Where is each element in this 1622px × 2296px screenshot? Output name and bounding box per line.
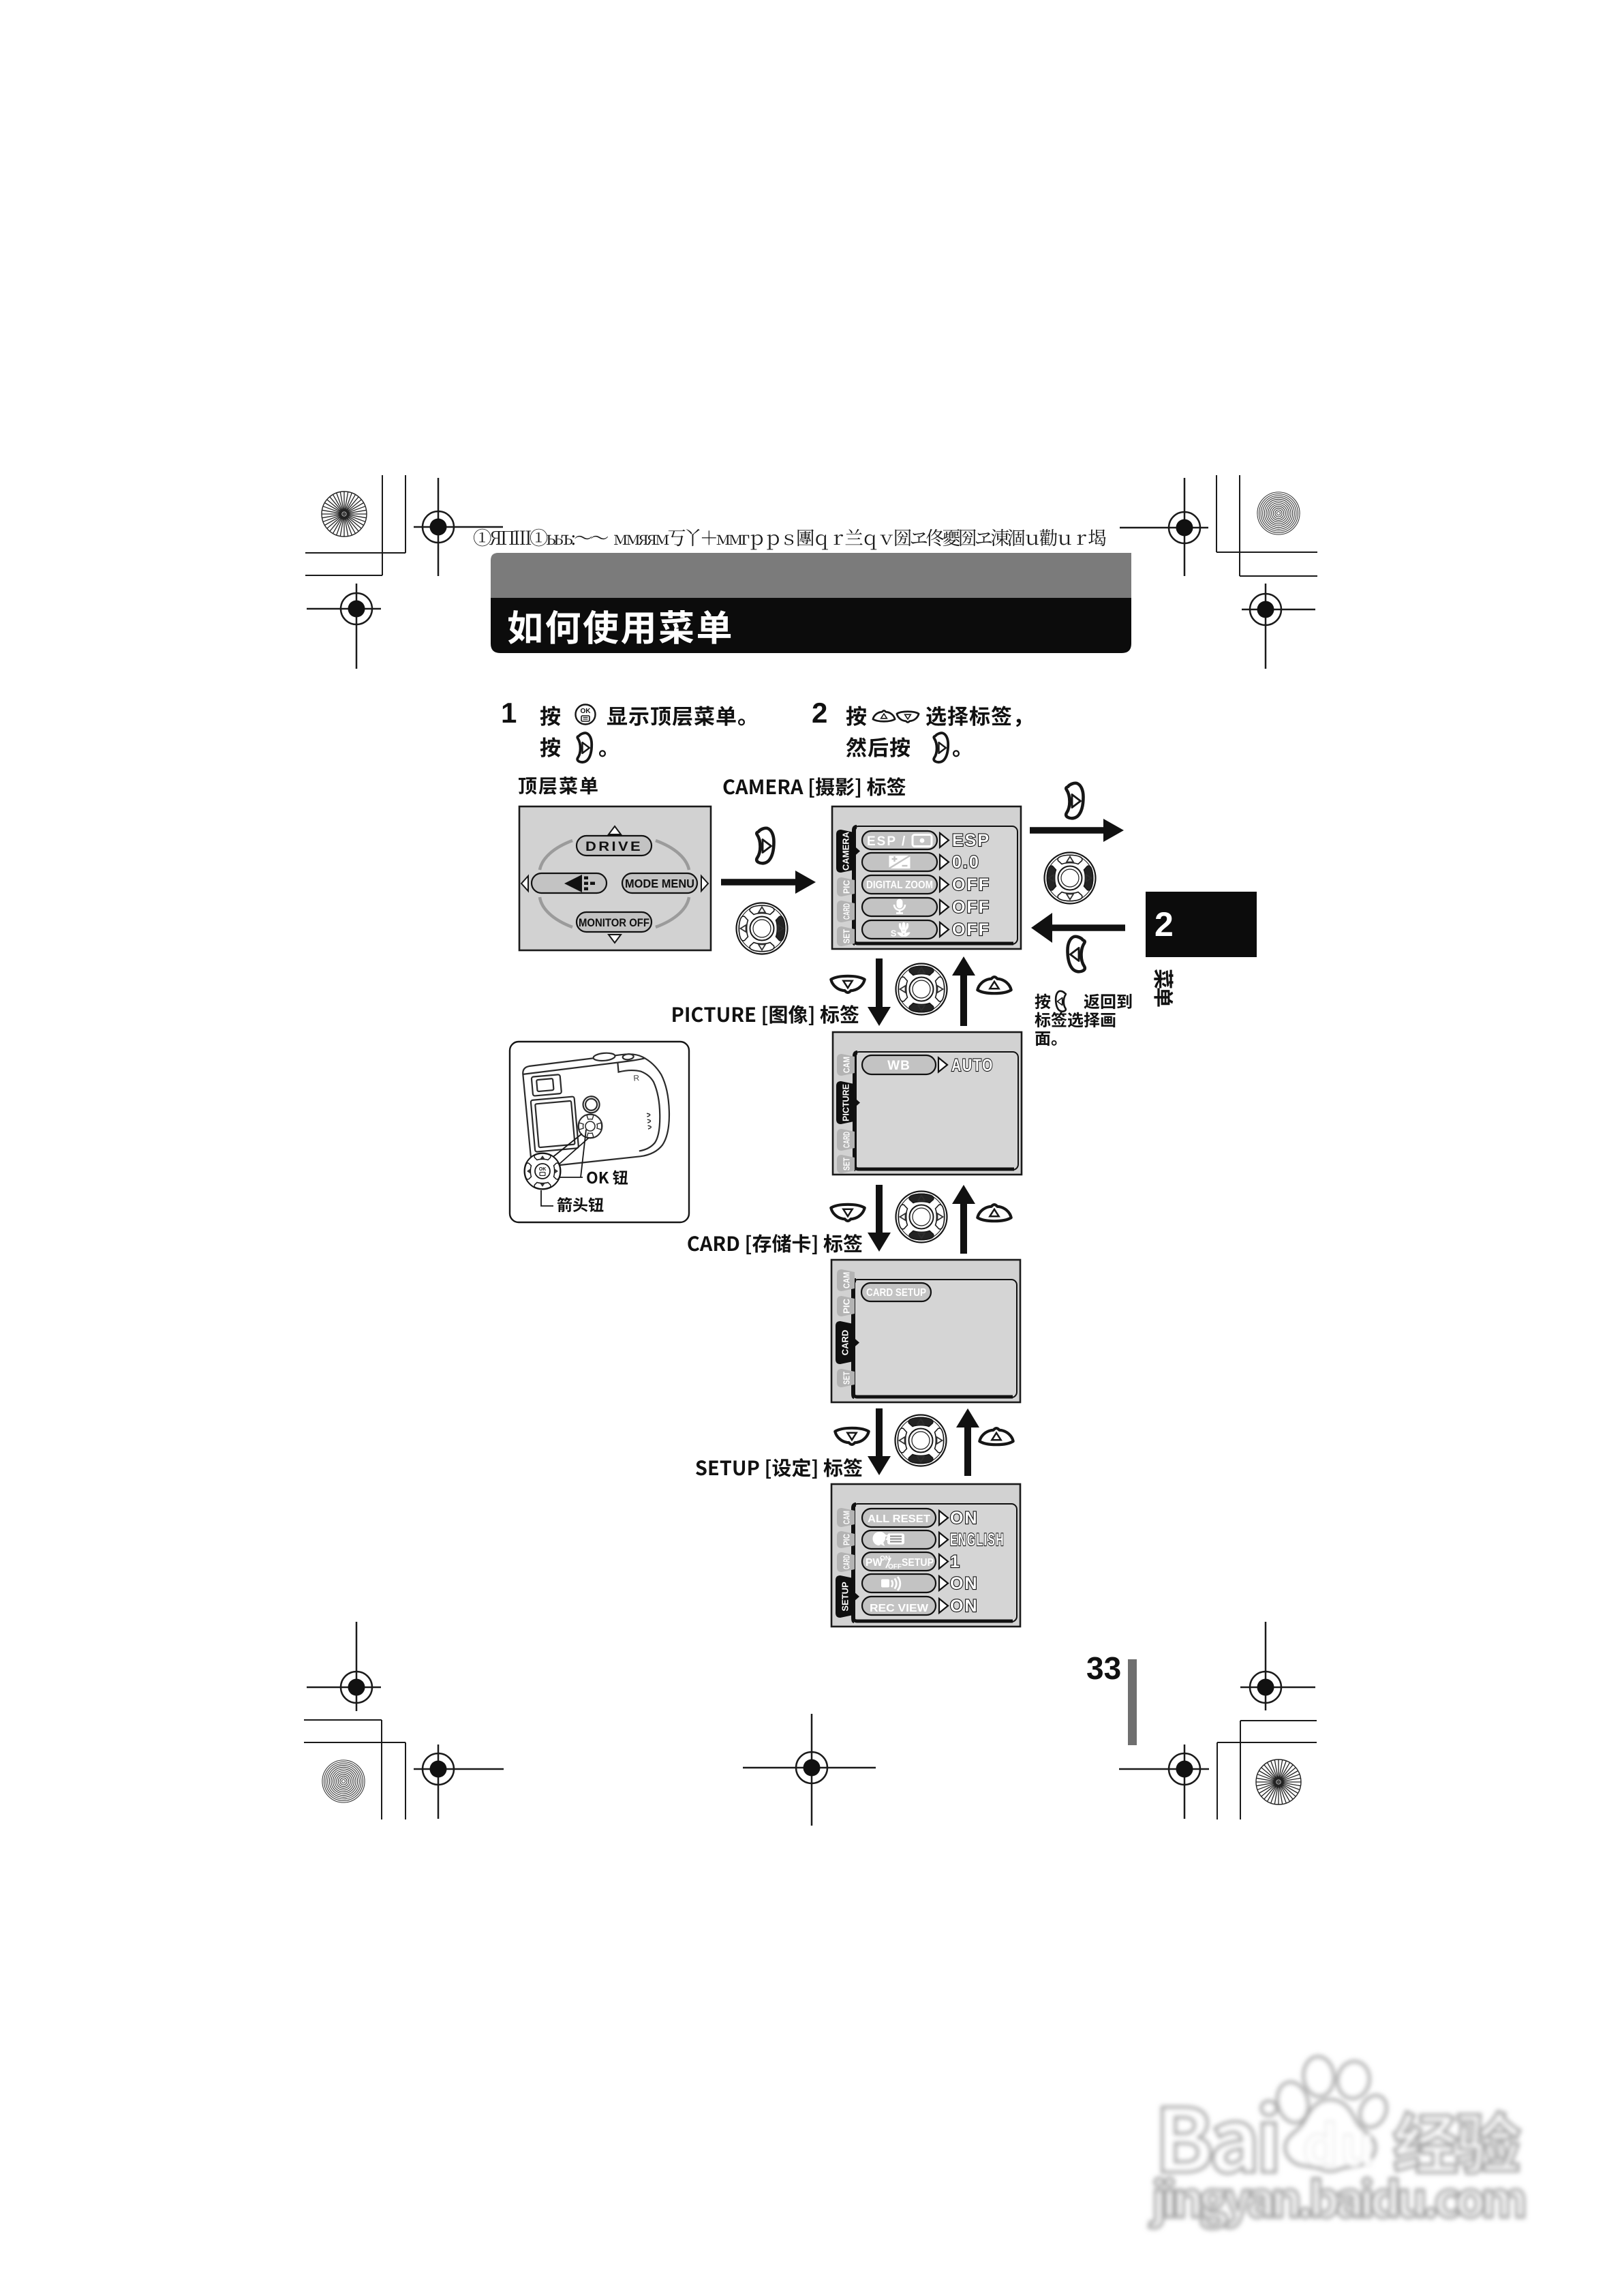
- svg-text:ESP /: ESP /: [867, 834, 906, 849]
- svg-text:PIC: PIC: [842, 1534, 852, 1545]
- svg-text:1: 1: [501, 697, 517, 729]
- svg-text:CARD: CARD: [842, 903, 852, 920]
- svg-text:DRIVE: DRIVE: [585, 839, 643, 854]
- svg-text:ON: ON: [950, 1597, 979, 1616]
- svg-text:33: 33: [1086, 1650, 1121, 1686]
- svg-text:R: R: [633, 1073, 640, 1083]
- svg-text:REC VIEW: REC VIEW: [870, 1603, 929, 1614]
- svg-text:OK: OK: [581, 708, 592, 715]
- svg-text:0.0: 0.0: [952, 853, 980, 872]
- svg-text:DIGITAL ZOOM: DIGITAL ZOOM: [866, 879, 933, 891]
- svg-text:MODE MENU: MODE MENU: [625, 877, 694, 890]
- svg-text:ENGLISH: ENGLISH: [950, 1530, 1005, 1550]
- svg-text:2: 2: [812, 697, 827, 729]
- svg-text:PIC: PIC: [842, 879, 852, 894]
- svg-text:CARD SETUP: CARD SETUP: [866, 1287, 926, 1299]
- svg-text:1: 1: [950, 1552, 961, 1571]
- svg-text:OFF: OFF: [888, 1563, 902, 1571]
- svg-text:CARD: CARD: [842, 1132, 852, 1148]
- svg-text:SETUP: SETUP: [902, 1557, 934, 1569]
- svg-text:OK: OK: [539, 1167, 547, 1172]
- svg-text:OFF: OFF: [952, 898, 990, 917]
- svg-text:ON: ON: [950, 1574, 979, 1593]
- svg-text:CAM: CAM: [842, 1511, 852, 1524]
- svg-text:AUTO: AUTO: [951, 1056, 994, 1075]
- svg-text:2: 2: [1154, 905, 1174, 943]
- svg-text:MONITOR OFF: MONITOR OFF: [579, 916, 649, 929]
- svg-text:OFF: OFF: [952, 875, 990, 894]
- svg-text:ON: ON: [950, 1509, 979, 1528]
- svg-text:WB: WB: [887, 1059, 911, 1073]
- svg-text:PICTURE: PICTURE: [841, 1084, 851, 1121]
- svg-text:S: S: [891, 928, 897, 939]
- svg-text:SETUP: SETUP: [840, 1582, 851, 1612]
- svg-text:CARD: CARD: [842, 1555, 852, 1569]
- svg-text:ALL RESET: ALL RESET: [868, 1513, 930, 1525]
- svg-text:SET: SET: [842, 1158, 852, 1170]
- svg-text:CAM: CAM: [842, 1057, 852, 1073]
- svg-text:PIC: PIC: [842, 1298, 852, 1314]
- svg-text:ESP: ESP: [952, 831, 990, 850]
- svg-text:SET: SET: [842, 1372, 852, 1385]
- svg-text:CARD: CARD: [840, 1330, 851, 1356]
- svg-text:CAM: CAM: [842, 1272, 852, 1288]
- svg-text:SET: SET: [842, 929, 852, 943]
- svg-text:OFF: OFF: [952, 920, 990, 939]
- svg-text:CAMERA: CAMERA: [841, 831, 851, 871]
